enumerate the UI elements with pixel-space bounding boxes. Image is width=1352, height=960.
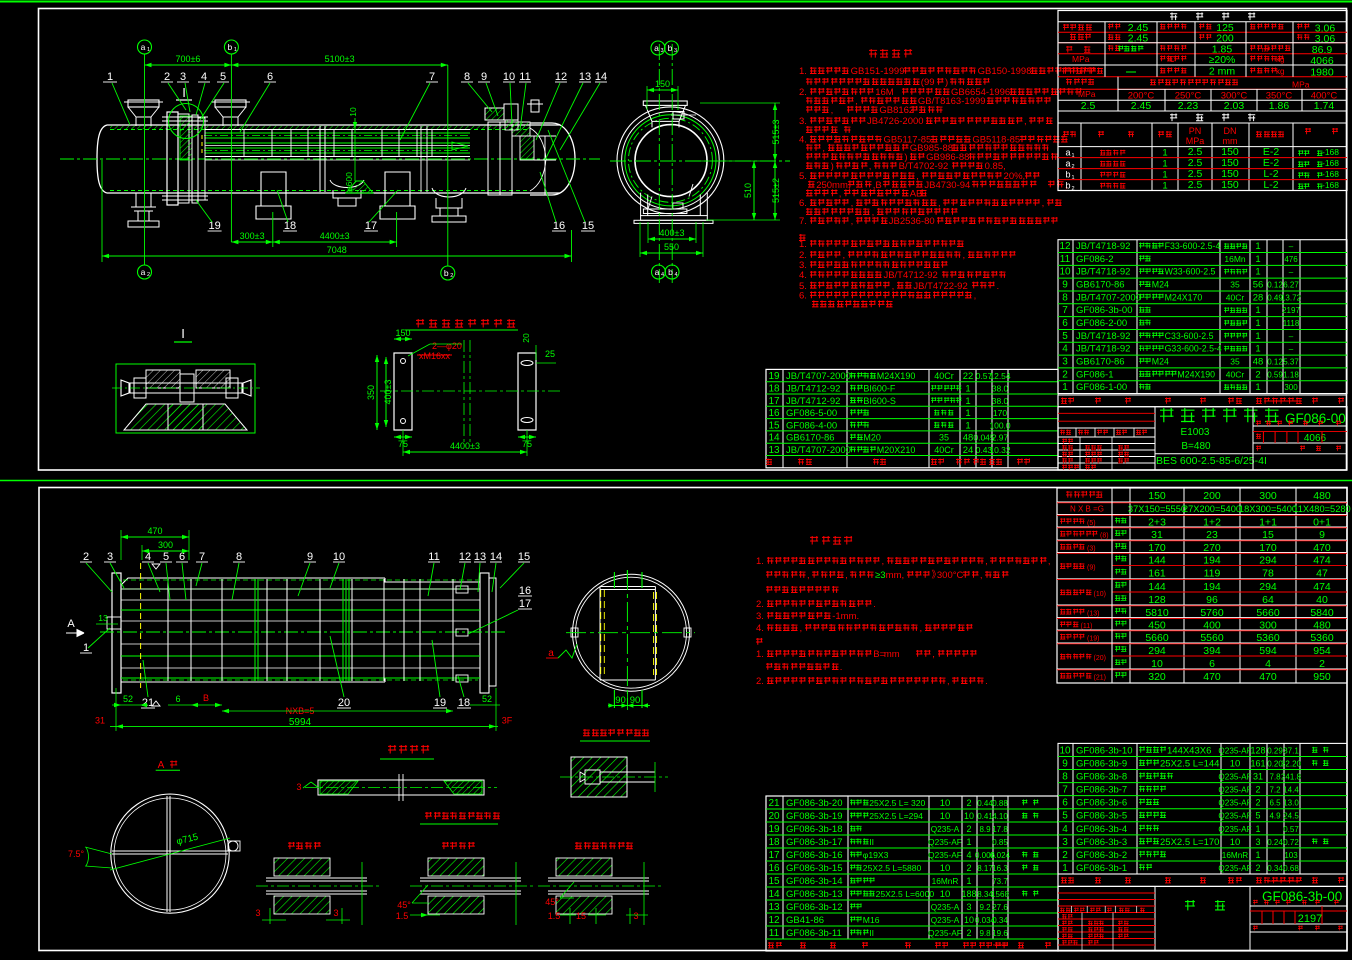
svg-text:0.41: 0.41 (977, 812, 993, 821)
svg-text:12: 12 (768, 915, 780, 926)
svg-text:a: a (141, 267, 146, 277)
svg-text:15: 15 (576, 911, 586, 921)
svg-text:0.85: 0.85 (992, 838, 1008, 847)
svg-text:1: 1 (107, 71, 113, 83)
svg-text:14.4: 14.4 (1283, 786, 1299, 795)
svg-text:3: 3 (661, 48, 664, 54)
svg-text:15: 15 (768, 420, 780, 431)
svg-text:6: 6 (175, 694, 180, 704)
svg-text:7.2: 7.2 (1269, 786, 1281, 795)
svg-text:1568: 1568 (991, 890, 1009, 899)
svg-text:11: 11 (428, 551, 439, 563)
svg-text:18X300=5400: 18X300=5400 (1239, 504, 1297, 514)
svg-text:14: 14 (768, 433, 780, 444)
svg-text:Q235-A: Q235-A (931, 915, 960, 925)
svg-text:16MnR: 16MnR (1222, 851, 1248, 860)
svg-text:20: 20 (521, 333, 531, 343)
svg-text:5: 5 (220, 71, 226, 83)
svg-text:(13): (13) (1087, 610, 1099, 617)
svg-text:17: 17 (519, 598, 531, 610)
svg-text:5: 5 (1062, 331, 1068, 342)
svg-text:10.32: 10.32 (989, 445, 1011, 455)
svg-text:JB4730-94: JB4730-94 (924, 180, 970, 191)
svg-text:1: 1 (965, 420, 970, 431)
svg-text:Q235-AF: Q235-AF (928, 837, 962, 847)
svg-text:mm,: mm, (886, 570, 904, 581)
svg-text:b: b (228, 42, 233, 52)
svg-text:4066: 4066 (1304, 433, 1327, 444)
svg-text:,: , (1048, 556, 1051, 567)
svg-text:3: 3 (966, 902, 971, 912)
svg-text:96: 96 (1206, 594, 1218, 606)
svg-text:23: 23 (1206, 529, 1218, 541)
svg-text:31: 31 (1151, 529, 1163, 541)
svg-text:5660: 5660 (1145, 632, 1169, 644)
svg-text:6: 6 (1209, 658, 1215, 670)
svg-text:103: 103 (1284, 851, 1298, 860)
svg-text:JB/T4718-92: JB/T4718-92 (1076, 331, 1130, 342)
svg-text:GF086-3b-8: GF086-3b-8 (1076, 772, 1127, 783)
svg-text:,: , (985, 556, 988, 567)
svg-text:2: 2 (1255, 369, 1260, 380)
svg-text:18: 18 (768, 837, 780, 848)
svg-text:GF086-3b-9: GF086-3b-9 (1076, 758, 1127, 769)
svg-text:15: 15 (582, 220, 594, 232)
svg-text:GF086-3b-19: GF086-3b-19 (786, 811, 843, 822)
svg-text:128: 128 (1148, 594, 1166, 606)
svg-text:48: 48 (963, 433, 974, 444)
svg-text:xM16xx: xM16xx (419, 351, 451, 361)
svg-text:1: 1 (1255, 850, 1260, 860)
svg-text:.: . (873, 599, 876, 610)
svg-text:JB/T4718-92: JB/T4718-92 (1076, 241, 1130, 252)
svg-text:7.8: 7.8 (1269, 773, 1281, 782)
svg-text:28: 28 (1253, 292, 1264, 303)
svg-text:19.6: 19.6 (992, 929, 1008, 938)
svg-text:45°: 45° (545, 897, 559, 907)
svg-text:320: 320 (1148, 671, 1166, 683)
svg-text:GF086-3b-10: GF086-3b-10 (1076, 745, 1133, 756)
svg-text:16: 16 (768, 863, 780, 874)
svg-text:37.1: 37.1 (1283, 746, 1299, 755)
svg-text:25X2.5 L=144: 25X2.5 L=144 (1160, 758, 1219, 769)
svg-text:,: , (799, 623, 802, 634)
svg-text:M24: M24 (1152, 280, 1169, 290)
svg-text:4.: 4. (799, 270, 807, 281)
svg-text:144X43X6: 144X43X6 (1167, 745, 1211, 756)
svg-text:170: 170 (993, 408, 1007, 418)
svg-text:2.: 2. (756, 599, 764, 610)
svg-text:,: , (855, 96, 858, 107)
svg-text:MPa: MPa (1186, 136, 1205, 146)
svg-text:2.97: 2.97 (992, 433, 1009, 443)
svg-text:0.59: 0.59 (1267, 370, 1283, 379)
svg-text:1: 1 (966, 876, 971, 886)
svg-text:(20): (20) (1094, 655, 1106, 662)
svg-text:8: 8 (1062, 292, 1068, 303)
svg-text:8: 8 (236, 551, 242, 563)
svg-text:II: II (869, 928, 874, 938)
svg-text:–: – (1289, 268, 1294, 277)
svg-text:300: 300 (158, 540, 173, 550)
svg-text:27X200=5400: 27X200=5400 (1183, 504, 1241, 514)
svg-text:GF086-3b-18: GF086-3b-18 (786, 824, 843, 835)
svg-text:0.44: 0.44 (977, 799, 993, 808)
svg-text:,: , (851, 198, 854, 209)
svg-text:40Cr: 40Cr (934, 445, 954, 455)
svg-text:b: b (1065, 170, 1070, 180)
svg-text:10: 10 (964, 915, 974, 925)
svg-text:294: 294 (1148, 645, 1166, 657)
svg-text:250mm,: 250mm, (816, 180, 850, 191)
svg-text:1: 1 (1162, 159, 1167, 170)
svg-text:40Cr: 40Cr (1226, 369, 1245, 379)
svg-text:294: 294 (1259, 581, 1277, 593)
svg-text:194: 194 (1203, 581, 1221, 593)
svg-text:10: 10 (1230, 758, 1241, 769)
svg-text:A: A (67, 618, 75, 630)
svg-text:GB8162: GB8162 (879, 105, 914, 116)
svg-text:,: , (842, 250, 845, 261)
svg-text:DN: DN (1224, 126, 1237, 136)
svg-text:JB/T4712-92: JB/T4712-92 (883, 270, 937, 281)
svg-text:3: 3 (1255, 837, 1260, 847)
svg-text:2: 2 (83, 551, 89, 563)
svg-text:-1mm.: -1mm. (832, 611, 859, 622)
svg-text:≥3: ≥3 (875, 570, 886, 581)
svg-text:M16: M16 (863, 915, 880, 925)
svg-text:GB5118-85: GB5118-85 (972, 135, 1020, 146)
svg-text:–: – (1289, 345, 1294, 354)
svg-text:,: , (963, 250, 966, 261)
svg-text:0.34: 0.34 (1267, 864, 1283, 873)
svg-text:2.5: 2.5 (1081, 100, 1096, 112)
svg-text:,: , (845, 570, 848, 581)
svg-text:35: 35 (939, 433, 949, 443)
svg-text:,: , (839, 189, 842, 200)
svg-text:25X2.5 L= 320: 25X2.5 L= 320 (869, 798, 925, 808)
svg-text:GF086-3b-16: GF086-3b-16 (786, 850, 843, 861)
svg-text:M20X210: M20X210 (877, 445, 916, 455)
svg-text:25X2.5 L=5880: 25X2.5 L=5880 (863, 863, 922, 873)
svg-text:10: 10 (940, 889, 951, 900)
svg-text:0.34: 0.34 (992, 916, 1008, 925)
svg-text:MPa: MPa (1072, 54, 1090, 64)
svg-text:11: 11 (1060, 254, 1071, 265)
svg-text:150: 150 (1221, 179, 1239, 191)
svg-text:a: a (548, 648, 554, 659)
svg-text:38.0: 38.0 (992, 384, 1009, 394)
svg-text:2: 2 (1255, 863, 1260, 873)
svg-text:0.12: 0.12 (1267, 357, 1283, 366)
svg-text:241.8: 241.8 (1281, 773, 1302, 782)
svg-text:GF086-3b-13: GF086-3b-13 (786, 889, 843, 900)
svg-text:,: , (881, 556, 884, 567)
svg-text:300°C: 300°C (937, 570, 964, 581)
svg-text:1.5: 1.5 (548, 911, 561, 921)
svg-text:Q235-A: Q235-A (931, 824, 960, 834)
svg-text:N X B =G: N X B =G (1070, 505, 1104, 514)
svg-text:950: 950 (1313, 671, 1331, 683)
svg-text:kg: kg (1276, 67, 1284, 76)
svg-text:1: 1 (1255, 318, 1260, 329)
svg-text:1: 1 (965, 384, 970, 395)
svg-text:19: 19 (434, 697, 446, 709)
svg-text:3F: 3F (502, 716, 513, 726)
svg-text:,: , (831, 105, 834, 116)
svg-text:3: 3 (674, 48, 677, 54)
svg-text:Q235-AF: Q235-AF (1218, 864, 1251, 873)
svg-text:300: 300 (1259, 490, 1277, 502)
svg-text:144: 144 (1148, 555, 1166, 567)
svg-text:1.: 1. (756, 649, 764, 660)
svg-text:–: – (1289, 332, 1294, 341)
svg-text:2: 2 (1072, 186, 1075, 192)
svg-text:32.20: 32.20 (1281, 759, 1302, 768)
svg-text:16.3: 16.3 (992, 864, 1008, 873)
svg-text:GB6170-86: GB6170-86 (1076, 356, 1125, 367)
svg-text:3: 3 (333, 908, 338, 918)
svg-text:2+3: 2+3 (1148, 517, 1166, 529)
svg-text:GF086-3b-6: GF086-3b-6 (1076, 798, 1127, 809)
svg-text:13: 13 (474, 551, 486, 563)
svg-text:200: 200 (1203, 490, 1221, 502)
svg-text:35: 35 (1230, 280, 1240, 290)
svg-text:150: 150 (655, 79, 670, 89)
svg-text:GB150-1998: GB150-1998 (978, 66, 1032, 77)
svg-text:GF086-3b-15: GF086-3b-15 (786, 863, 843, 874)
svg-text:7: 7 (429, 71, 435, 83)
svg-text:(99: (99 (921, 77, 935, 88)
svg-text:B/T4702-92: B/T4702-92 (899, 161, 949, 172)
svg-text:73.7: 73.7 (992, 877, 1008, 886)
svg-text:150: 150 (395, 328, 410, 338)
svg-text:4: 4 (966, 850, 971, 860)
svg-text:20%,: 20%, (1004, 171, 1026, 182)
svg-text:a: a (655, 267, 660, 277)
svg-text:16Mn: 16Mn (1224, 254, 1246, 264)
svg-text:I: I (181, 326, 185, 341)
svg-text:GF086-3b-00: GF086-3b-00 (1262, 889, 1342, 904)
svg-text:10: 10 (1059, 267, 1071, 278)
svg-text:170: 170 (1259, 542, 1277, 554)
svg-text:470: 470 (1259, 671, 1277, 683)
svg-text:2: 2 (164, 71, 170, 83)
svg-text:0.57: 0.57 (1283, 825, 1299, 834)
svg-text:3: 3 (633, 911, 638, 921)
svg-text:470: 470 (147, 526, 162, 536)
svg-text:,: , (920, 623, 923, 634)
svg-text:45°: 45° (397, 900, 411, 910)
svg-text:16M: 16M (875, 87, 894, 98)
svg-text:1.74: 1.74 (1314, 100, 1335, 112)
svg-text:10: 10 (940, 811, 951, 822)
svg-text:8: 8 (1062, 772, 1068, 783)
svg-text:,: , (869, 161, 872, 172)
svg-text:10: 10 (503, 71, 515, 83)
svg-text:JB/T4712-92: JB/T4712-92 (786, 384, 840, 395)
svg-text:b: b (444, 268, 449, 278)
svg-text:2: 2 (1255, 798, 1260, 808)
svg-text:400±3: 400±3 (660, 228, 685, 238)
svg-text:2197: 2197 (1298, 913, 1322, 925)
svg-text:1: 1 (1255, 344, 1260, 355)
svg-text:9: 9 (481, 71, 487, 83)
svg-text:474: 474 (1313, 555, 1331, 567)
svg-text:,: , (1042, 198, 1045, 209)
svg-text:1: 1 (1162, 170, 1167, 181)
svg-text:11: 11 (519, 71, 530, 83)
svg-text:161: 161 (1250, 758, 1265, 768)
svg-text:2: 2 (1062, 850, 1068, 861)
svg-text:400±3: 400±3 (383, 380, 393, 405)
svg-text:515±2: 515±2 (771, 178, 781, 203)
svg-text:18: 18 (284, 220, 296, 232)
svg-text:470: 470 (1203, 671, 1221, 683)
svg-text:.: . (996, 281, 999, 292)
svg-text:1980: 1980 (1310, 67, 1334, 79)
svg-text:,B: ,B (873, 180, 882, 191)
svg-text:13: 13 (768, 445, 780, 456)
svg-text:Q235-AF: Q235-AF (1218, 799, 1251, 808)
svg-text:GF086-3b-5: GF086-3b-5 (1076, 811, 1127, 822)
svg-text:4: 4 (1062, 824, 1068, 835)
svg-text:1: 1 (1162, 148, 1167, 159)
svg-text:3.: 3. (756, 611, 764, 622)
svg-text:GF086-3b-11: GF086-3b-11 (786, 928, 842, 939)
svg-text:4400±3: 4400±3 (320, 231, 350, 241)
svg-text:4066: 4066 (1310, 55, 1334, 67)
svg-text:5810: 5810 (1145, 607, 1169, 619)
svg-text:GF086-2: GF086-2 (1076, 254, 1114, 265)
svg-text:2: 2 (450, 273, 453, 279)
svg-text:(3): (3) (1087, 545, 1096, 552)
svg-text:300: 300 (1259, 620, 1277, 632)
svg-text:21: 21 (768, 798, 780, 809)
svg-text:B=480: B=480 (1181, 441, 1211, 452)
svg-text:10: 10 (333, 551, 345, 563)
svg-text:18: 18 (768, 384, 780, 395)
svg-text:400: 400 (1203, 620, 1221, 632)
svg-text:5100±3: 5100±3 (325, 54, 355, 64)
svg-text:0.12: 0.12 (1267, 281, 1283, 290)
svg-text:4400±3: 4400±3 (450, 441, 480, 451)
svg-text:161: 161 (1148, 568, 1166, 580)
svg-text:9: 9 (1319, 529, 1325, 541)
svg-text:(9): (9) (1087, 565, 1096, 572)
svg-text:5: 5 (1255, 811, 1260, 821)
svg-text:): ) (831, 161, 834, 172)
svg-text:0+1: 0+1 (1313, 517, 1331, 529)
svg-text:1: 1 (1255, 305, 1260, 316)
svg-text:14: 14 (490, 551, 502, 563)
svg-text:JB/T4712-92: JB/T4712-92 (786, 396, 840, 407)
svg-text:JB/T4722-92: JB/T4722-92 (913, 281, 967, 292)
svg-text:GF086-3b-2: GF086-3b-2 (1076, 850, 1127, 861)
svg-text:5760: 5760 (1200, 607, 1224, 619)
svg-text:40: 40 (1316, 594, 1328, 606)
svg-text:0.024: 0.024 (990, 851, 1011, 860)
svg-text:0.29: 0.29 (1267, 746, 1283, 755)
svg-text:Q235-A: Q235-A (931, 902, 960, 912)
svg-text:Q235-AF: Q235-AF (1218, 825, 1251, 834)
svg-text:GB/T8163-1999: GB/T8163-1999 (918, 96, 986, 107)
svg-text:47: 47 (1316, 568, 1328, 580)
svg-text:17.8: 17.8 (992, 825, 1008, 834)
svg-text:12: 12 (1059, 241, 1071, 252)
svg-text:3: 3 (180, 71, 186, 83)
svg-text:1+1: 1+1 (1259, 517, 1277, 529)
svg-text:1: 1 (147, 47, 150, 53)
svg-text:8.17: 8.17 (977, 864, 993, 873)
svg-text:24: 24 (963, 445, 974, 456)
svg-text:): ) (945, 77, 948, 88)
svg-text:mm: mm (1223, 136, 1238, 146)
svg-text:3: 3 (1062, 837, 1068, 848)
svg-text:15: 15 (1262, 529, 1274, 541)
svg-text:A: A (158, 760, 165, 771)
svg-text:194: 194 (1203, 555, 1221, 567)
svg-text:13.0: 13.0 (1283, 799, 1299, 808)
svg-text:3.: 3. (799, 116, 807, 127)
svg-text:9: 9 (307, 551, 313, 563)
svg-text:GB6170-86: GB6170-86 (1076, 280, 1125, 291)
svg-text:2: 2 (966, 863, 971, 873)
svg-text:1+2: 1+2 (1203, 517, 1221, 529)
svg-text:474: 474 (1313, 581, 1331, 593)
svg-text:B: B (203, 693, 209, 703)
svg-text:10: 10 (1230, 837, 1241, 848)
svg-text:6.: 6. (799, 291, 807, 302)
svg-text:700±6: 700±6 (175, 54, 200, 64)
svg-text:300: 300 (1284, 383, 1298, 392)
svg-text:2.5: 2.5 (1188, 179, 1203, 191)
svg-text:2.: 2. (756, 676, 764, 687)
svg-text:300±3: 300±3 (240, 231, 265, 241)
svg-text:1: 1 (1255, 382, 1260, 393)
svg-text:350: 350 (366, 385, 376, 400)
svg-text:394: 394 (1203, 645, 1221, 657)
svg-text:GF086-5-00: GF086-5-00 (786, 408, 837, 419)
svg-text:,: , (938, 198, 941, 209)
svg-text:2.45: 2.45 (1131, 100, 1152, 112)
svg-text:φ19X3: φ19X3 (863, 850, 889, 860)
svg-text:BES 600-2.5-85-6/25-4I: BES 600-2.5-85-6/25-4I (1156, 455, 1267, 467)
svg-text:19: 19 (208, 220, 220, 232)
svg-text:,: , (947, 676, 950, 687)
svg-text:.: . (840, 662, 843, 673)
svg-text:450: 450 (1148, 620, 1166, 632)
svg-text:21: 21 (142, 697, 154, 709)
svg-text:(10): (10) (1094, 591, 1106, 598)
svg-text:,: , (892, 281, 895, 292)
svg-text:52: 52 (123, 694, 133, 704)
svg-text:,: , (980, 570, 983, 581)
svg-text:16: 16 (519, 585, 531, 597)
svg-text:56: 56 (1253, 280, 1264, 291)
svg-text:12: 12 (555, 71, 567, 83)
svg-text:E1003: E1003 (1181, 427, 1210, 438)
svg-text:24.5: 24.5 (1283, 812, 1299, 821)
svg-text:119: 119 (1204, 568, 1221, 580)
svg-text:52: 52 (482, 694, 492, 704)
svg-text:II: II (869, 837, 874, 847)
svg-text:M24X190: M24X190 (1177, 369, 1215, 379)
svg-text:,: , (916, 171, 919, 182)
svg-text:5360: 5360 (1256, 632, 1280, 644)
svg-text:19: 19 (768, 824, 780, 835)
svg-text:12.54: 12.54 (989, 371, 1011, 381)
